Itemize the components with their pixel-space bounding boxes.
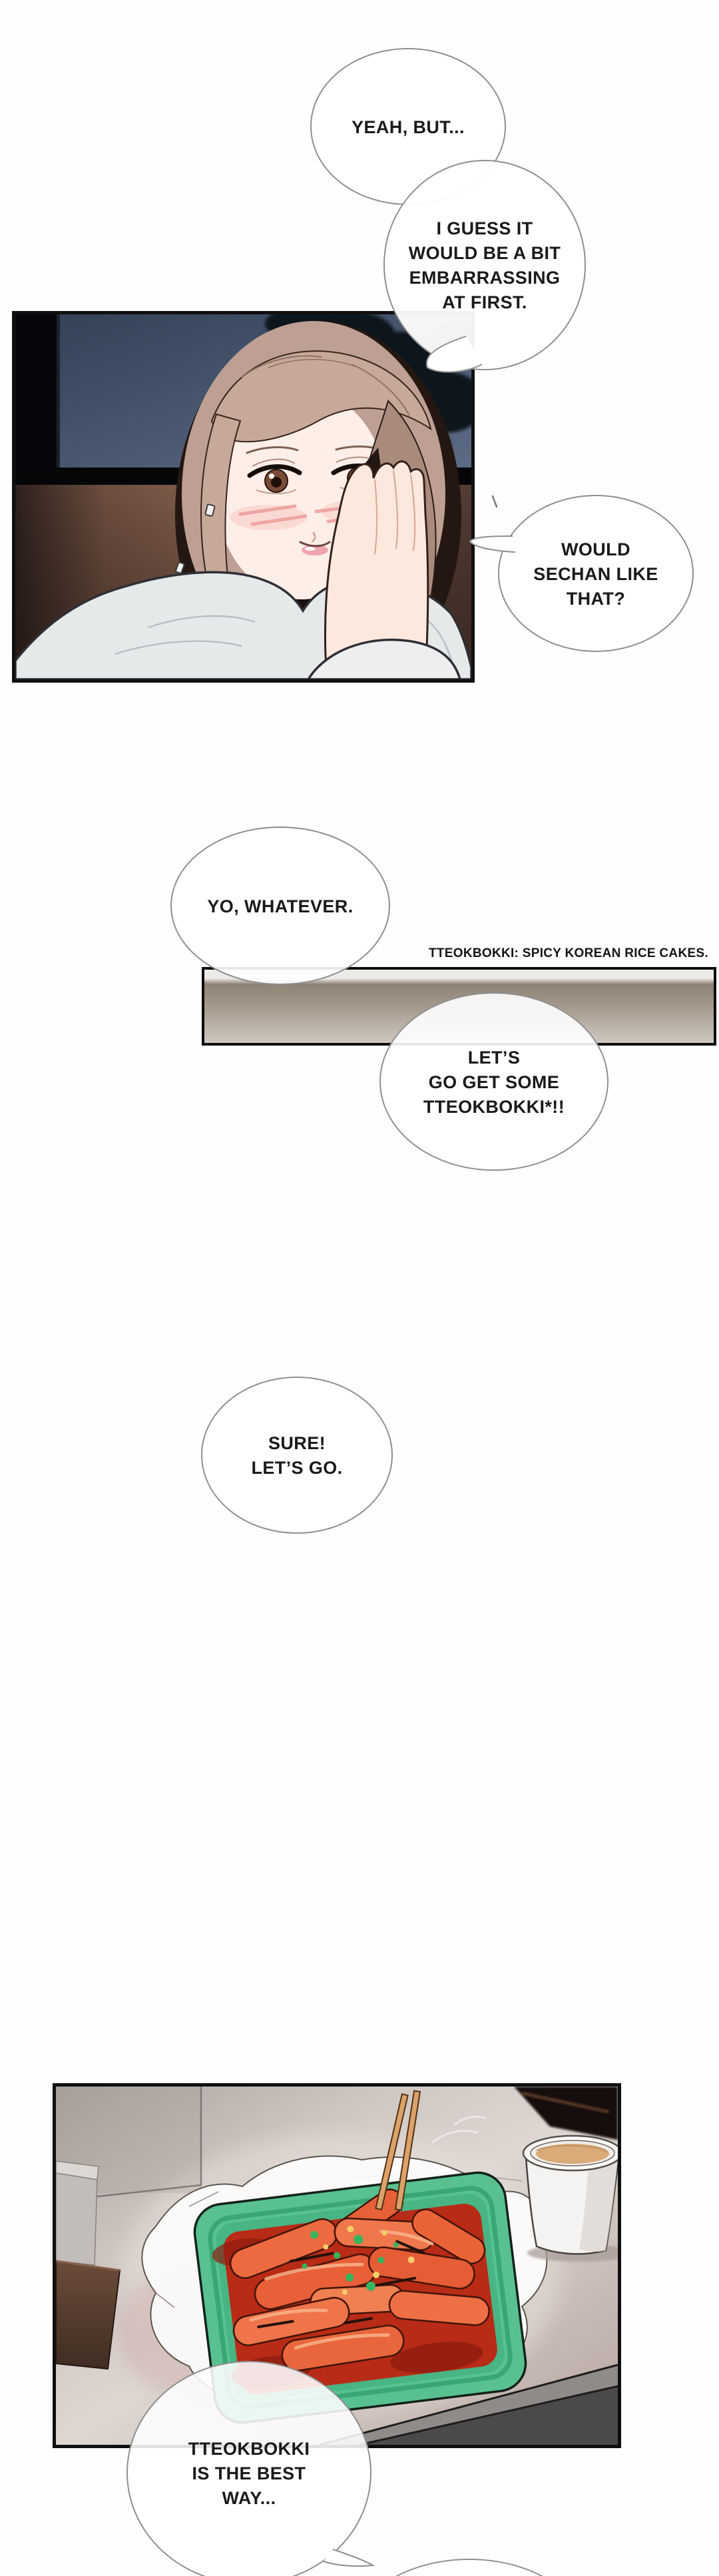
napkin-holder: [56, 2161, 99, 2265]
bubble-text: LET’S GO GET SOME TTEOKBOKKI*!!: [423, 1046, 565, 1120]
tissue-box: [56, 2261, 120, 2369]
speech-bubble-whatever: YO, WHATEVER.: [170, 826, 390, 985]
comic-page: YEAH, BUT... I GUESS IT WOULD BE A BIT E…: [0, 0, 719, 2576]
bubble-text: WOULD SECHAN LIKE THAT?: [533, 537, 658, 611]
panel-tteokbokki-table: [53, 2083, 621, 2448]
bubble-text: TTEOKBOKKI IS THE BEST WAY...: [188, 2437, 310, 2511]
bubble-tail: [313, 2537, 393, 2576]
bubble-tail: [399, 313, 506, 380]
speech-bubble-lets-get: LET’S GO GET SOME TTEOKBOKKI*!!: [379, 992, 608, 1171]
bubble-text: YO, WHATEVER.: [207, 894, 353, 919]
bubble-text: YEAH, BUT...: [352, 115, 465, 140]
speech-bubble-sure: SURE! LET’S GO.: [201, 1377, 393, 1534]
paper-cup: [523, 2136, 618, 2262]
bubble-text: SURE! LET’S GO.: [251, 1431, 342, 1480]
panel2-art: [56, 2087, 618, 2445]
bubble-tail: [459, 489, 539, 563]
bubble-text: I GUESS IT WOULD BE A BIT EMBARRASSING A…: [409, 216, 561, 315]
